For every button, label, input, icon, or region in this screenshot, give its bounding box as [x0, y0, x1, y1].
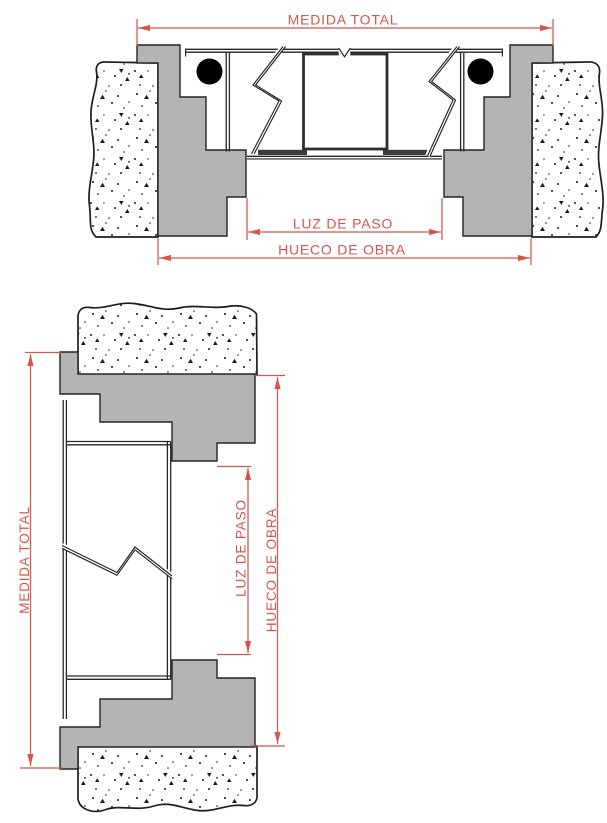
arrowhead: [540, 25, 552, 31]
arrowhead: [518, 255, 530, 261]
arrowhead: [245, 641, 251, 653]
arrowhead: [274, 732, 280, 744]
door-frame-technical-drawing: MEDIDA TOTAL LUZ DE PASO HUECO DE OBRA: [0, 0, 607, 823]
frame-stop-bar-right: [383, 150, 430, 155]
top-view-horizontal-section: MEDIDA TOTAL LUZ DE PASO HUECO DE OBRA: [89, 12, 603, 266]
dim-label-medida-total: MEDIDA TOTAL: [17, 506, 32, 614]
arrowhead: [27, 354, 33, 366]
arrowhead: [429, 229, 441, 235]
arrowhead: [245, 468, 251, 480]
wall-top: [78, 303, 257, 375]
dim-label-luz-de-paso: LUZ DE PASO: [293, 216, 393, 232]
arrowhead: [274, 377, 280, 389]
arrowhead: [27, 754, 33, 766]
bottom-view-vertical-section: MEDIDA TOTAL LUZ DE PASO HUECO DE OBRA: [17, 303, 285, 811]
hinge-icon: [477, 60, 492, 75]
arrowhead: [159, 255, 171, 261]
break-mark: [62, 546, 172, 577]
arrowhead: [138, 25, 150, 31]
hinge-icon: [199, 60, 214, 75]
wall-bottom: [78, 746, 257, 811]
wall-left: [89, 62, 158, 237]
break-mark-left: [252, 47, 284, 155]
door-leaf-plan: [185, 45, 503, 159]
dim-label-hueco-de-obra: HUECO DE OBRA: [278, 242, 406, 258]
leaf-core-section: [304, 54, 388, 149]
dim-label-luz-de-paso: LUZ DE PASO: [234, 499, 249, 597]
frame-stop-bar-left: [258, 150, 307, 155]
dim-label-medida-total: MEDIDA TOTAL: [288, 12, 399, 28]
wall-right: [532, 62, 603, 237]
dim-label-hueco-de-obra: HUECO DE OBRA: [264, 508, 279, 633]
door-leaf-section: [62, 400, 172, 719]
arrowhead: [248, 229, 260, 235]
